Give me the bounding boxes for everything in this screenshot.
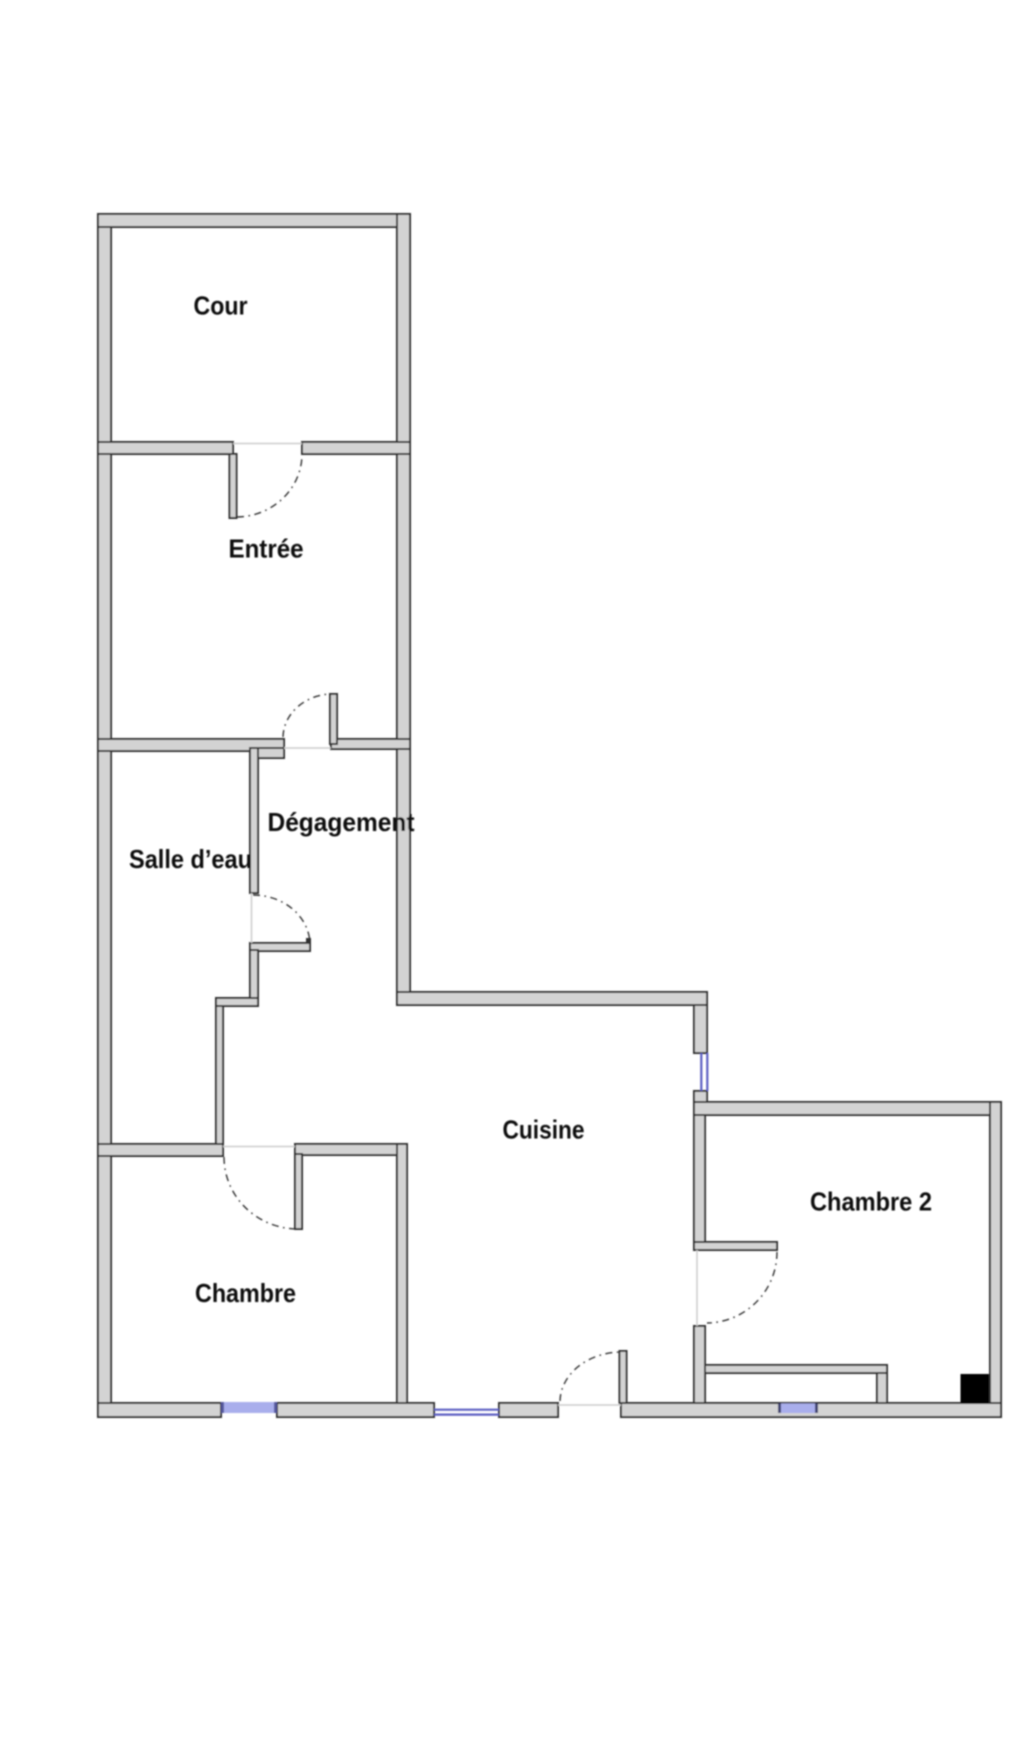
- svg-text:Salle d’eau: Salle d’eau: [129, 844, 252, 874]
- svg-text:Entrée: Entrée: [229, 534, 304, 564]
- svg-text:Chambre: Chambre: [195, 1278, 296, 1308]
- svg-text:Cuisine: Cuisine: [503, 1115, 585, 1145]
- svg-text:Chambre 2: Chambre 2: [810, 1187, 932, 1217]
- svg-text:Cour: Cour: [194, 291, 248, 321]
- svg-text:Dégagement: Dégagement: [268, 807, 415, 837]
